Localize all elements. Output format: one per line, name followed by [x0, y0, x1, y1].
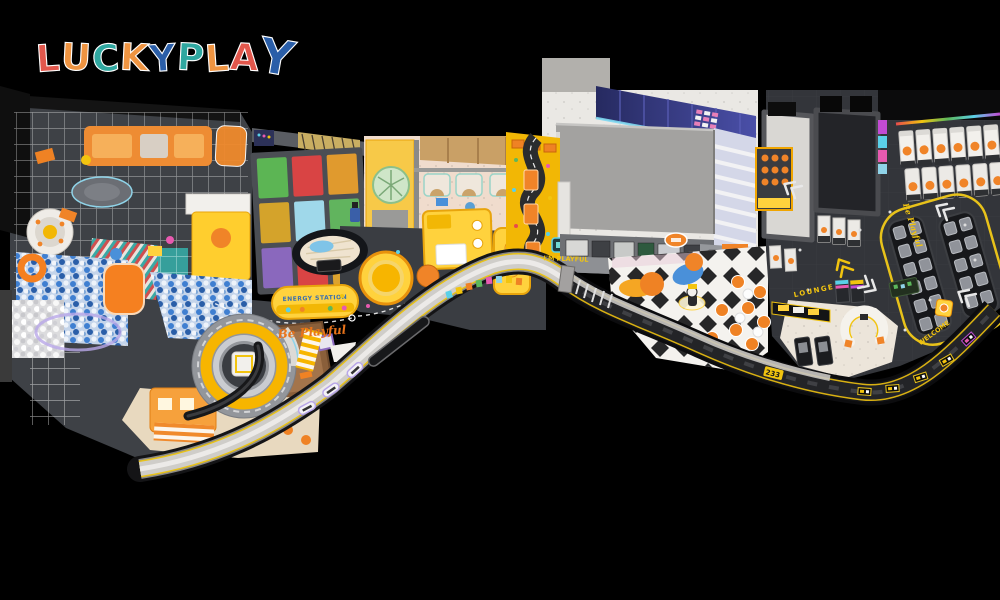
round-deck [72, 177, 132, 207]
mini-arcade [254, 130, 274, 146]
trampoline-tile [327, 153, 359, 195]
trampoline-tile [259, 202, 291, 244]
drum-pouf [360, 252, 412, 304]
grill-badge [665, 233, 687, 247]
orange-slide [215, 125, 247, 167]
logo-letter: K [119, 35, 151, 79]
trampoline-tile [261, 247, 293, 289]
logo-letter: L [204, 36, 232, 81]
logo-cube-sign [935, 299, 953, 317]
prize-shelf [756, 148, 792, 210]
zone-interactive-room [542, 58, 758, 258]
toy-house-row [84, 126, 212, 166]
logo-letter: U [59, 35, 92, 80]
party-room-dark [816, 96, 878, 214]
yellow-slide-tower [186, 194, 250, 280]
brand-logo: LUCKYPLAY [36, 26, 295, 82]
im-playful-label: I'M PLAYFUL [543, 254, 588, 264]
logo-letter: C [90, 36, 121, 81]
air-bag [104, 264, 144, 314]
seat-arches [424, 174, 516, 196]
scene-svg: ENERGY STATION [0, 0, 1000, 600]
roof-block [556, 124, 714, 234]
glow-corridor [714, 128, 756, 256]
pillar [558, 182, 570, 238]
playground-floorplan-render: LUCKYPLAY [0, 0, 1000, 600]
neon-edge [878, 120, 887, 174]
trampoline-tile [257, 157, 289, 199]
spin-room [366, 140, 414, 232]
logo-letter: Y [148, 36, 179, 81]
logo-letter: P [176, 35, 206, 79]
energy-station-capsule: ENERGY STATION [271, 284, 358, 319]
trampoline-tile [292, 155, 324, 197]
logo-letter: L [35, 36, 63, 81]
